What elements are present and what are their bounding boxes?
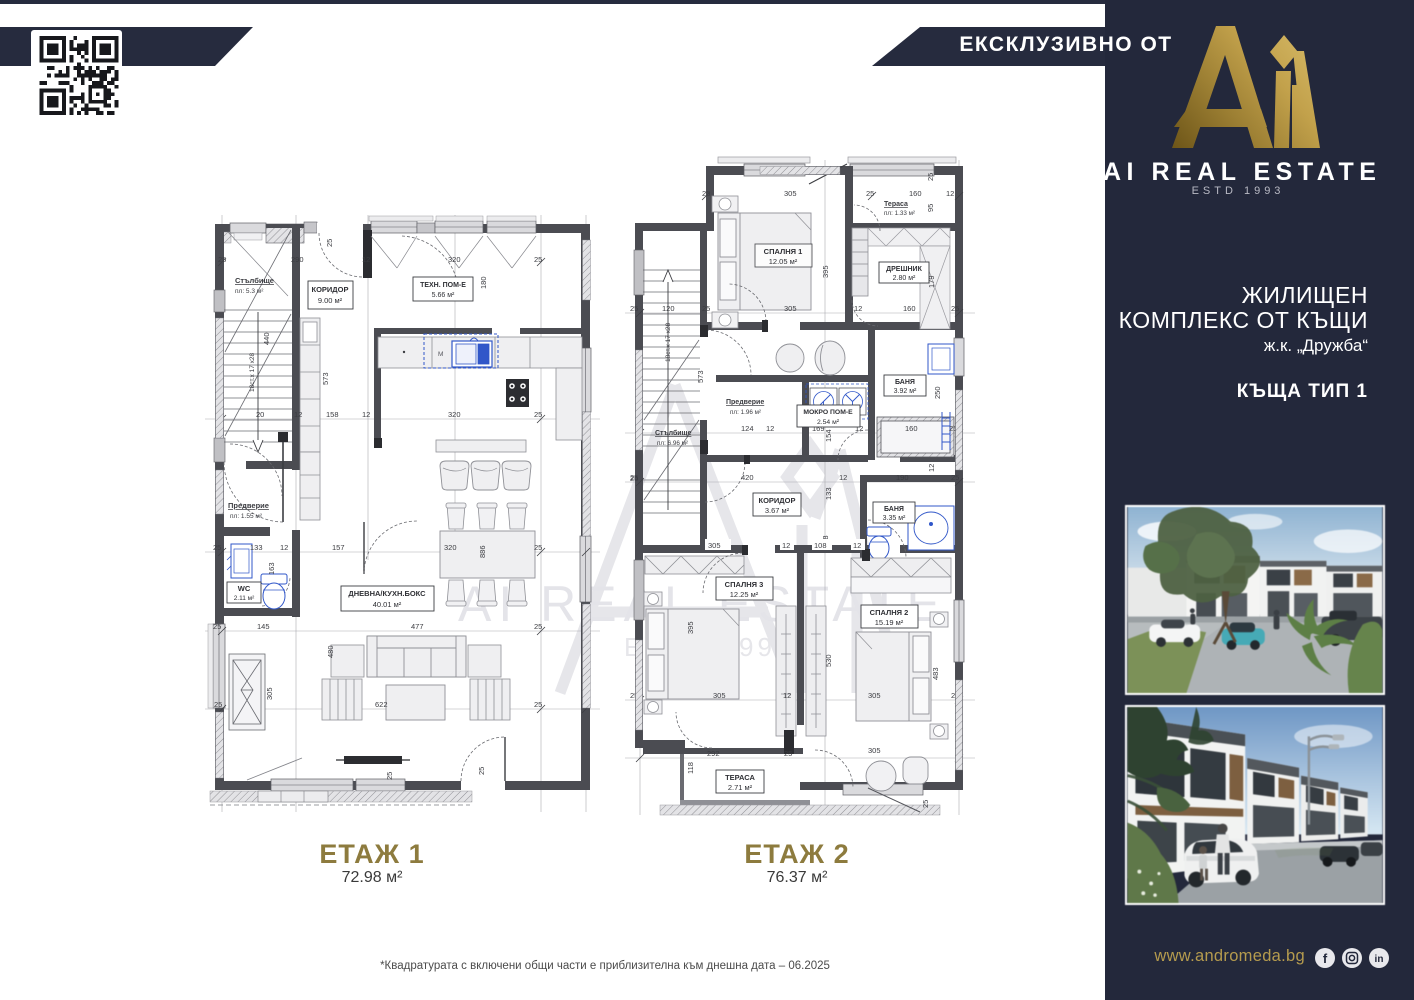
- svg-text:2.11 м²: 2.11 м²: [234, 595, 255, 602]
- svg-text:18ст.х 17 х28: 18ст.х 17 х28: [249, 353, 256, 392]
- svg-text:ТЕРАСА: ТЕРАСА: [725, 773, 755, 782]
- svg-text:133: 133: [824, 487, 833, 500]
- svg-text:420: 420: [741, 473, 754, 482]
- svg-text:395: 395: [686, 621, 695, 634]
- svg-text:320: 320: [444, 543, 457, 552]
- svg-text:292: 292: [707, 749, 720, 758]
- svg-text:МОКРО ПОМ-Е: МОКРО ПОМ-Е: [803, 409, 853, 416]
- svg-text:25: 25: [534, 622, 542, 631]
- svg-text:12.05 м²: 12.05 м²: [769, 257, 798, 266]
- svg-text:25: 25: [630, 304, 638, 313]
- svg-text:483: 483: [931, 667, 940, 680]
- svg-text:СПАЛНЯ 1: СПАЛНЯ 1: [764, 247, 803, 256]
- svg-text:190: 190: [896, 473, 909, 482]
- svg-text:180: 180: [479, 276, 488, 289]
- svg-text:9.00 м²: 9.00 м²: [318, 296, 343, 305]
- svg-text:25: 25: [951, 473, 959, 482]
- svg-text:M: M: [438, 351, 443, 358]
- svg-text:25: 25: [325, 239, 334, 247]
- svg-text:12: 12: [854, 304, 862, 313]
- svg-text:250: 250: [933, 386, 942, 399]
- svg-text:3.67 м²: 3.67 м²: [765, 506, 790, 515]
- svg-text:12: 12: [782, 541, 790, 550]
- svg-text:КОРИДОР: КОРИДОР: [759, 496, 796, 505]
- svg-text:886: 886: [478, 545, 487, 558]
- svg-text:145: 145: [257, 622, 270, 631]
- svg-text:12: 12: [362, 410, 370, 419]
- svg-text:157: 157: [332, 543, 345, 552]
- svg-text:163: 163: [267, 562, 276, 575]
- svg-text:25: 25: [866, 189, 874, 198]
- svg-text:20: 20: [256, 410, 264, 419]
- svg-text:5.66 м²: 5.66 м²: [432, 292, 455, 299]
- svg-text:12: 12: [294, 410, 302, 419]
- svg-text:25: 25: [534, 255, 542, 264]
- svg-text:440: 440: [262, 332, 271, 345]
- svg-text:305: 305: [708, 541, 721, 550]
- svg-text:25: 25: [921, 800, 930, 808]
- svg-text:573: 573: [696, 370, 705, 383]
- svg-text:160: 160: [905, 424, 918, 433]
- svg-text:3.35 м²: 3.35 м²: [883, 515, 906, 522]
- svg-text:пл: 1.55 м²: пл: 1.55 м²: [230, 513, 263, 520]
- svg-text:25: 25: [385, 772, 394, 780]
- svg-text:124: 124: [741, 424, 754, 433]
- svg-text:in: in: [1375, 954, 1384, 965]
- svg-text:25: 25: [477, 767, 486, 775]
- svg-text:40.01 м²: 40.01 м²: [373, 600, 402, 609]
- svg-text:2.54 м²: 2.54 м²: [817, 419, 840, 426]
- svg-text:305: 305: [784, 304, 797, 313]
- svg-text:108: 108: [814, 541, 827, 550]
- svg-text:290: 290: [291, 255, 304, 264]
- svg-text:БАНЯ: БАНЯ: [895, 379, 915, 386]
- svg-text:Тераса: Тераса: [884, 201, 908, 208]
- svg-text:25: 25: [702, 304, 710, 313]
- svg-text:12: 12: [946, 189, 954, 198]
- svg-text:118: 118: [686, 762, 695, 774]
- svg-text:2.80 м²: 2.80 м²: [893, 275, 916, 282]
- svg-text:пл: 1.33 м²: пл: 1.33 м²: [884, 210, 915, 217]
- svg-text:12: 12: [783, 691, 791, 700]
- svg-text:154: 154: [824, 429, 833, 442]
- svg-text:320: 320: [448, 255, 461, 264]
- svg-text:477: 477: [411, 622, 424, 631]
- svg-text:15.19 м²: 15.19 м²: [875, 618, 904, 627]
- svg-text:25: 25: [213, 622, 221, 631]
- svg-text:пл: 6.96 м²: пл: 6.96 м²: [657, 440, 688, 447]
- svg-text:160: 160: [903, 304, 916, 313]
- svg-text:25: 25: [534, 700, 542, 709]
- svg-text:25: 25: [702, 189, 710, 198]
- svg-text:305: 305: [265, 687, 274, 700]
- svg-text:Предверие: Предверие: [228, 501, 269, 510]
- svg-text:Стълбище: Стълбище: [655, 429, 691, 437]
- svg-text:ТЕХН. ПОМ-Е: ТЕХН. ПОМ-Е: [420, 282, 466, 289]
- svg-text:СПАЛНЯ 3: СПАЛНЯ 3: [725, 580, 764, 589]
- svg-text:25: 25: [534, 410, 542, 419]
- svg-text:Предверие: Предверие: [726, 399, 764, 406]
- svg-text:12: 12: [362, 255, 370, 264]
- svg-text:305: 305: [784, 189, 797, 198]
- svg-text:12: 12: [853, 541, 861, 550]
- svg-text:530: 530: [824, 654, 833, 667]
- svg-text:25: 25: [926, 173, 935, 181]
- svg-text:622: 622: [375, 700, 388, 709]
- svg-text:WC: WC: [238, 584, 251, 593]
- svg-text:ДРЕШНИК: ДРЕШНИК: [886, 266, 922, 273]
- svg-text:25: 25: [951, 304, 959, 313]
- svg-text:25: 25: [784, 749, 792, 758]
- svg-text:25: 25: [534, 543, 542, 552]
- svg-text:пл: 5.3 м²: пл: 5.3 м²: [235, 288, 264, 295]
- svg-text:пл: 1.96 м²: пл: 1.96 м²: [730, 409, 761, 416]
- svg-text:305: 305: [868, 691, 881, 700]
- svg-text:12.25 м²: 12.25 м²: [730, 590, 759, 599]
- svg-text:12: 12: [927, 464, 936, 472]
- svg-text:305: 305: [713, 691, 726, 700]
- svg-text:305: 305: [868, 746, 881, 755]
- svg-text:12: 12: [280, 543, 288, 552]
- svg-text:2.71 м²: 2.71 м²: [728, 783, 753, 792]
- svg-text:СПАЛНЯ 2: СПАЛНЯ 2: [870, 608, 909, 617]
- svg-text:БАНЯ: БАНЯ: [884, 506, 904, 513]
- svg-text:25: 25: [630, 474, 638, 483]
- svg-text:158: 158: [326, 410, 339, 419]
- svg-text:Стълбище: Стълбище: [235, 276, 274, 285]
- svg-text:320: 320: [448, 410, 461, 419]
- svg-text:12: 12: [839, 473, 847, 482]
- svg-text:ДНЕВНА/КУХН.БОКС: ДНЕВНА/КУХН.БОКС: [348, 589, 426, 598]
- svg-text:18ст.х 17 х28: 18ст.х 17 х28: [665, 323, 672, 362]
- svg-text:120: 120: [662, 304, 675, 313]
- svg-text:25: 25: [214, 700, 222, 709]
- svg-text:480: 480: [326, 645, 335, 658]
- svg-text:12: 12: [766, 424, 774, 433]
- svg-text:f: f: [1323, 951, 1328, 966]
- svg-text:3.92 м²: 3.92 м²: [894, 388, 917, 395]
- svg-text:КОРИДОР: КОРИДОР: [312, 285, 349, 294]
- svg-text:95: 95: [926, 204, 935, 212]
- svg-text:25: 25: [213, 543, 221, 552]
- svg-text:133: 133: [250, 543, 263, 552]
- svg-text:160: 160: [909, 189, 922, 198]
- svg-text:573: 573: [321, 372, 330, 385]
- svg-text:25: 25: [218, 255, 226, 264]
- svg-text:395: 395: [821, 265, 830, 278]
